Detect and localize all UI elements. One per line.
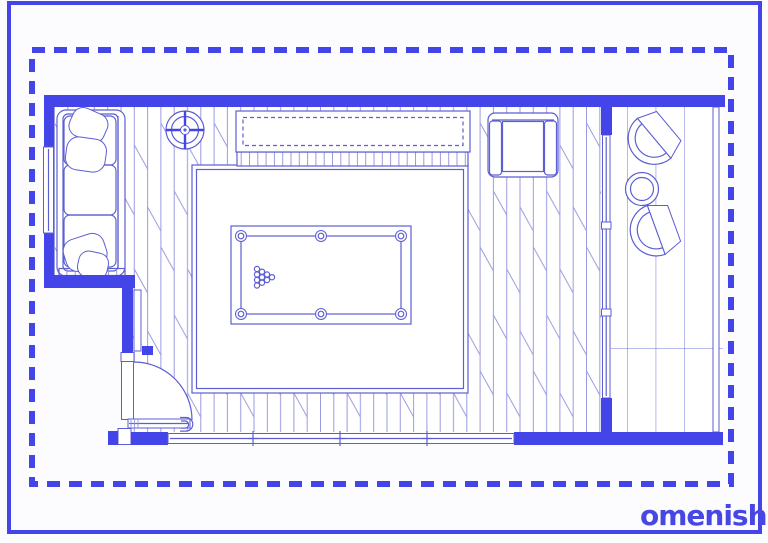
brand-logo: omenish <box>638 496 760 530</box>
right-thin-wall <box>713 107 719 432</box>
sofa <box>57 104 125 281</box>
bottom-window-band <box>168 431 514 446</box>
glass-partition <box>602 135 612 398</box>
notch-wall <box>44 275 135 288</box>
floor-border-strip <box>237 152 468 166</box>
media-console <box>236 111 470 152</box>
ceiling-light-icon <box>166 111 204 149</box>
armchair <box>488 113 558 177</box>
bottom-wall <box>514 432 723 445</box>
left-wall-window <box>44 147 54 233</box>
floor-plan-drawing <box>0 0 768 543</box>
top-wall <box>44 95 725 107</box>
floor-plan-canvas: omenish <box>0 0 768 543</box>
pool-table <box>231 226 411 324</box>
round-side-table <box>626 173 659 206</box>
brand-wordmark: omenish <box>640 502 767 530</box>
